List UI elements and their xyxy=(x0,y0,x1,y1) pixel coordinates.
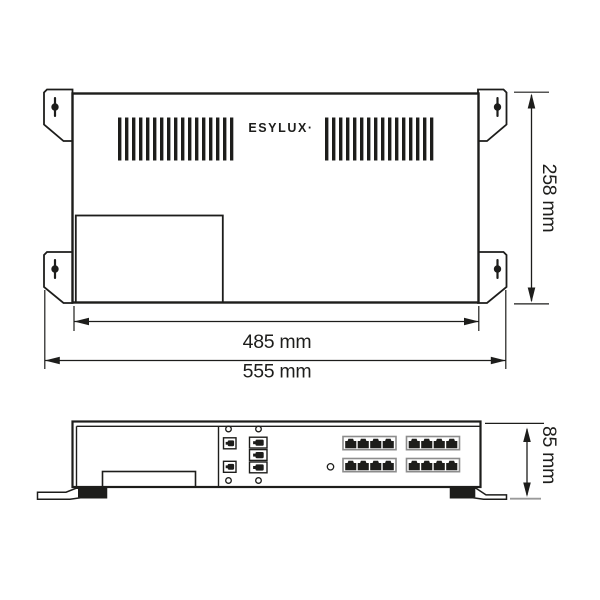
dimension-annotations-front: 85 mm xyxy=(485,423,560,498)
vent-slats-right xyxy=(325,118,433,161)
top-view: ESYLUX· xyxy=(44,90,507,304)
arrowhead-up-icon xyxy=(528,94,536,109)
arrowhead-down-icon xyxy=(523,483,531,498)
dim-85-label: 85 mm xyxy=(538,426,560,484)
dimension-drawing: ESYLUX· 485 mm 555 mm 258 mm xyxy=(0,0,600,600)
rj45-bank xyxy=(407,459,460,472)
dim-258-label: 258 mm xyxy=(538,164,560,233)
arrowhead-right-icon xyxy=(464,318,479,326)
front-view xyxy=(38,422,507,500)
arrowhead-down-icon xyxy=(528,288,536,303)
rj45-bank xyxy=(407,437,460,450)
chassis-front-outline xyxy=(73,422,481,488)
arrowhead-left-icon xyxy=(45,357,60,365)
dim-485-label: 485 mm xyxy=(243,331,312,353)
dim-555-label: 555 mm xyxy=(243,361,312,383)
mounting-tab-bottom-left xyxy=(44,252,73,303)
arrowhead-up-icon xyxy=(523,428,531,443)
vent-slats-left xyxy=(118,118,233,161)
foot-left-pad xyxy=(78,489,107,498)
rj45-bank xyxy=(343,437,396,450)
mounting-tab-bottom-right xyxy=(478,252,507,303)
arrowhead-right-icon xyxy=(491,357,506,365)
mounting-tab-top-left xyxy=(44,90,73,142)
foot-right-pad xyxy=(451,489,476,498)
mounting-tab-top-right xyxy=(478,90,507,142)
drawing-canvas: ESYLUX· 485 mm 555 mm 258 mm xyxy=(0,0,600,600)
rj45-bank xyxy=(343,459,396,472)
arrowhead-left-icon xyxy=(74,318,89,326)
brand-logo: ESYLUX· xyxy=(248,121,313,135)
